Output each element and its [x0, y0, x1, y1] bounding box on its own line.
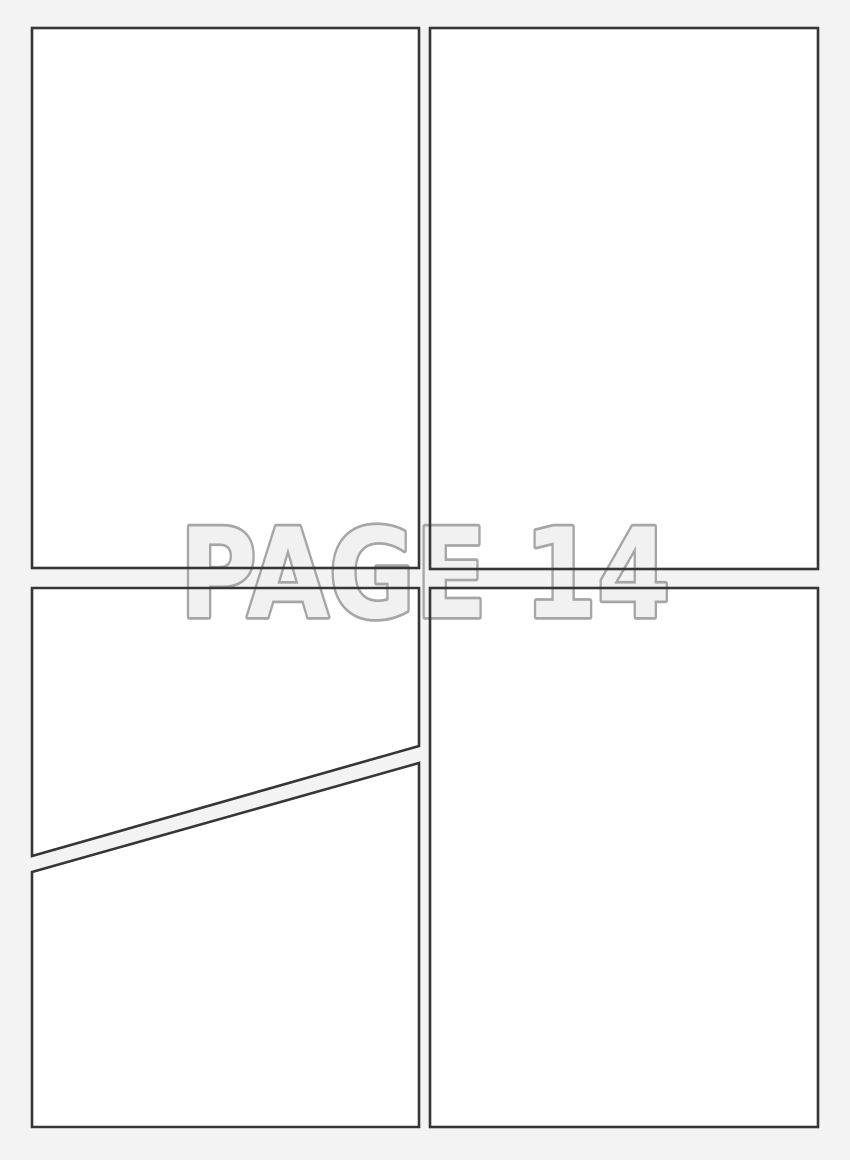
comic-panels-canvas: PAGE 14	[0, 0, 850, 1160]
page-number-watermark: PAGE 14	[180, 503, 671, 647]
panel-top-left	[32, 28, 419, 568]
panel-top-right	[430, 28, 818, 569]
panel-bottom-right	[430, 588, 818, 1127]
comic-page-template: PAGE 14	[0, 0, 850, 1160]
watermark-group: PAGE 14	[180, 503, 671, 647]
